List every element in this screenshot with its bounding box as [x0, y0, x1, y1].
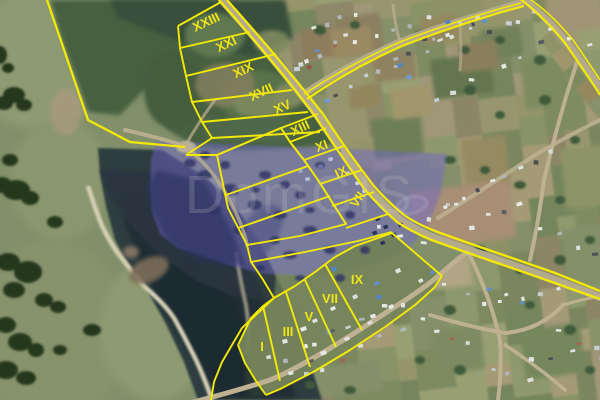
svg-text:IX: IX [351, 272, 364, 287]
svg-text:III: III [283, 324, 294, 339]
svg-text:VII: VII [322, 291, 338, 306]
svg-text:I: I [260, 339, 264, 354]
svg-text:V: V [305, 309, 314, 324]
svg-text:DomGIS: DomGIS [185, 165, 416, 225]
